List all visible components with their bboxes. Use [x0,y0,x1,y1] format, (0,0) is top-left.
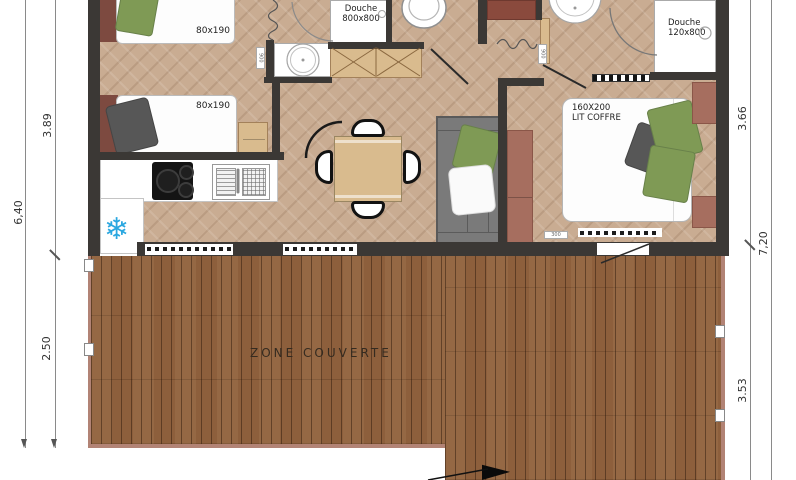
window-kitchen [145,244,233,255]
floor-plan-canvas: ZONE COUVERTE 3.89 6,40 2.50 3.66 7,20 3… [0,0,796,480]
deck-post [715,325,725,338]
cooktop-burner [178,182,194,198]
shower1-label: Douche 800x800 [334,5,388,24]
sill-dashes [580,231,660,235]
table-edge [335,195,401,198]
wall-bath1-bottom [328,42,424,49]
dim-label-3-66: 3.66 [736,106,749,131]
deck-zone-label: ZONE COUVERTE [250,346,392,360]
shower1-glass-door [386,0,392,44]
dim-arrow [21,439,27,448]
bedroom2-sill [578,228,662,237]
deck-post [84,259,94,272]
dim-line-right-inner [750,0,751,480]
bed2-label: 80x190 [180,101,230,111]
master-bed-label: 160X200 LIT COFFRE [572,104,621,123]
table-edge [335,140,401,143]
bed1-label: 80x190 [180,26,230,36]
tag-basin1: 900 [256,47,265,69]
dining-table [334,136,402,202]
sink-basin [242,168,266,196]
sill-dashes [147,247,231,251]
door-opening-deck [597,243,649,255]
snowflake-icon: ❄ [104,212,129,247]
wall-bedroom1-right [272,78,280,160]
wall-wc-right [478,0,487,44]
tag-bedroom2-sill: 300 [544,231,568,239]
deck-post [715,409,725,422]
bed1-pillow [115,0,160,37]
chair-top [351,119,385,137]
shower2-label-line1: Douche [668,18,700,28]
nightstand [238,122,268,156]
dim-label-2-50: 2.50 [40,336,53,361]
wardrobe-bedroom2-right-bottom [692,196,718,228]
sofa-pillow-white [448,164,497,216]
shower1-label-line1: Douche [345,4,377,14]
cooktop-burner [179,165,194,180]
wall-right [716,0,729,250]
window-living [283,244,357,255]
basin1-cabinet [274,43,332,77]
dim-label-3-53: 3.53 [736,378,749,403]
shower1-label-line2: 800x800 [342,14,379,24]
threshold-grille [592,74,650,82]
wall-bedroom2-left [498,86,507,246]
cooktop-burner [156,169,180,193]
tag-basin2: 900 [538,44,547,64]
shower2-label: Douche 120x800 [668,19,708,38]
sink-drainer [216,168,236,196]
cooktop [152,162,193,200]
wall-bedroom2-top-right [650,72,716,80]
deck-post [84,343,94,356]
shower2-label-line2: 120x800 [668,28,705,38]
wall-bedroom1-bottom [88,152,284,160]
master-bed-label-line2: LIT COFFRE [572,113,621,123]
dim-arrow [51,439,57,448]
dim-label-7-20: 7,20 [757,231,770,256]
wall-bath1-left [266,40,274,80]
nightstand-drawer-line [243,139,265,140]
chair-left [315,150,333,184]
dim-line-right-outer [771,0,772,480]
wardrobe-top [487,0,536,20]
wardrobe-bedroom2-right-top [692,82,718,124]
dim-label-3-89: 3.89 [41,113,54,138]
master-pillow-green2 [642,144,696,203]
sill-dashes [285,247,355,251]
dim-line-left-outer [25,0,26,448]
wall-bedroom2-top-left [498,78,544,86]
wall-left [88,0,100,256]
wardrobe-bedroom2-left [507,130,533,246]
wardrobe-seam [508,197,532,198]
dim-line-left-inner [55,0,56,448]
sofa-seam [438,232,498,233]
storage-cabinet [330,46,422,78]
dim-label-6-40: 6,40 [12,200,25,225]
deck-right [445,256,725,480]
master-bed-label-line1: 160X200 [572,103,610,113]
wall-cabinet-right [536,0,542,20]
